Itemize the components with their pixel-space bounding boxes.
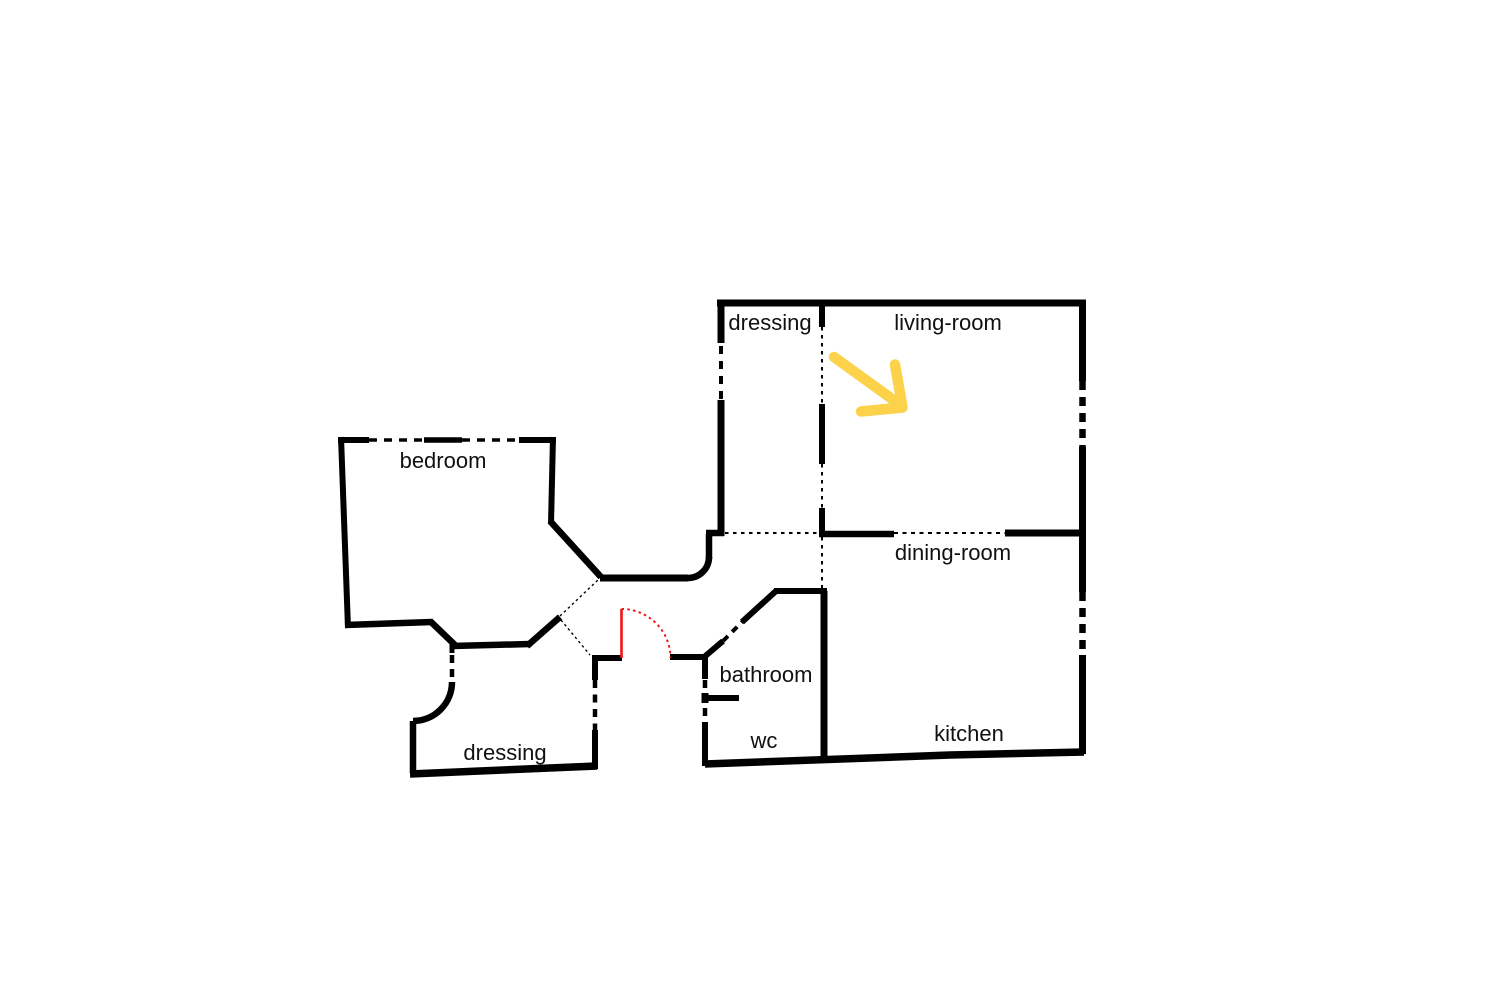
svg-text:dining-room: dining-room [895,540,1011,565]
svg-text:dressing: dressing [728,310,811,335]
svg-text:dressing: dressing [463,740,546,765]
svg-text:bedroom: bedroom [400,448,487,473]
svg-text:kitchen: kitchen [934,721,1004,746]
svg-text:wc: wc [750,728,778,753]
svg-text:living-room: living-room [894,310,1002,335]
svg-text:bathroom: bathroom [720,662,813,687]
